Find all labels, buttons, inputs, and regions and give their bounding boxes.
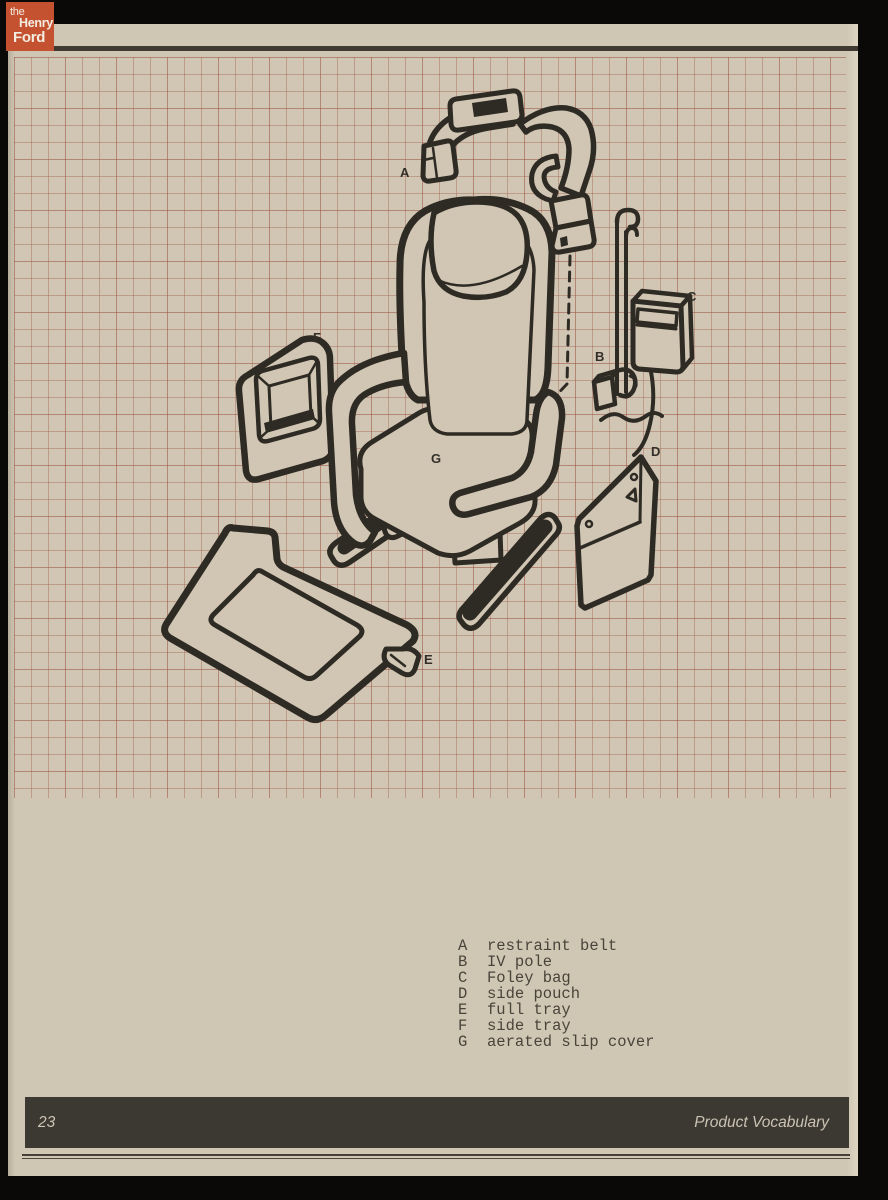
legend-row: D side pouch	[458, 986, 654, 1002]
callout-d: D	[651, 444, 660, 459]
exploded-diagram: A B C D E F G	[14, 57, 846, 798]
logo-henry: Henry	[19, 16, 53, 30]
callout-f: F	[313, 330, 321, 345]
patient-chair	[329, 199, 562, 628]
legend-row: A restraint belt	[458, 938, 654, 954]
legend-row: F side tray	[458, 1018, 654, 1034]
scanned-page-canvas: { "branding": { "logo_line1": "the", "lo…	[0, 0, 888, 1200]
legend-term: side pouch	[487, 986, 580, 1002]
callout-e: E	[424, 652, 433, 667]
legend-letter: C	[458, 970, 487, 986]
footer-bar: 23 Product Vocabulary	[25, 1097, 849, 1148]
callout-b: B	[595, 349, 604, 364]
callout-c: C	[687, 289, 697, 304]
legend-row: G aerated slip cover	[458, 1034, 654, 1050]
legend-term: restraint belt	[487, 938, 617, 954]
legend-letter: G	[458, 1034, 487, 1050]
legend-term: aerated slip cover	[487, 1034, 654, 1050]
legend-letter: B	[458, 954, 487, 970]
footer-double-rule	[22, 1154, 850, 1159]
part-side-tray	[239, 339, 333, 480]
part-full-tray	[165, 528, 419, 720]
legend-row: E full tray	[458, 1002, 654, 1018]
legend-letter: A	[458, 938, 487, 954]
legend-term: side tray	[487, 1018, 571, 1034]
legend-term: IV pole	[487, 954, 552, 970]
part-foley-bag	[633, 291, 692, 455]
callout-g: G	[431, 451, 441, 466]
logo-ford: Ford	[13, 29, 45, 46]
legend-term: Foley bag	[487, 970, 571, 986]
document-page: A B C D E F G A restraint belt B IV pole…	[8, 24, 858, 1176]
legend-row: C Foley bag	[458, 970, 654, 986]
legend-row: B IV pole	[458, 954, 654, 970]
part-side-pouch	[577, 457, 656, 608]
page-right-edge	[847, 24, 858, 1176]
top-rule	[8, 46, 858, 51]
section-title: Product Vocabulary	[694, 1114, 829, 1132]
legend-letter: F	[458, 1018, 487, 1034]
parts-legend: A restraint belt B IV pole C Foley bag D…	[458, 938, 654, 1050]
graph-paper: A B C D E F G	[14, 57, 846, 798]
henry-ford-logo: the Henry Ford	[6, 2, 54, 51]
legend-letter: D	[458, 986, 487, 1002]
legend-letter: E	[458, 1002, 487, 1018]
legend-term: full tray	[487, 1002, 571, 1018]
callout-a: A	[400, 165, 410, 180]
page-number: 23	[38, 1114, 55, 1132]
